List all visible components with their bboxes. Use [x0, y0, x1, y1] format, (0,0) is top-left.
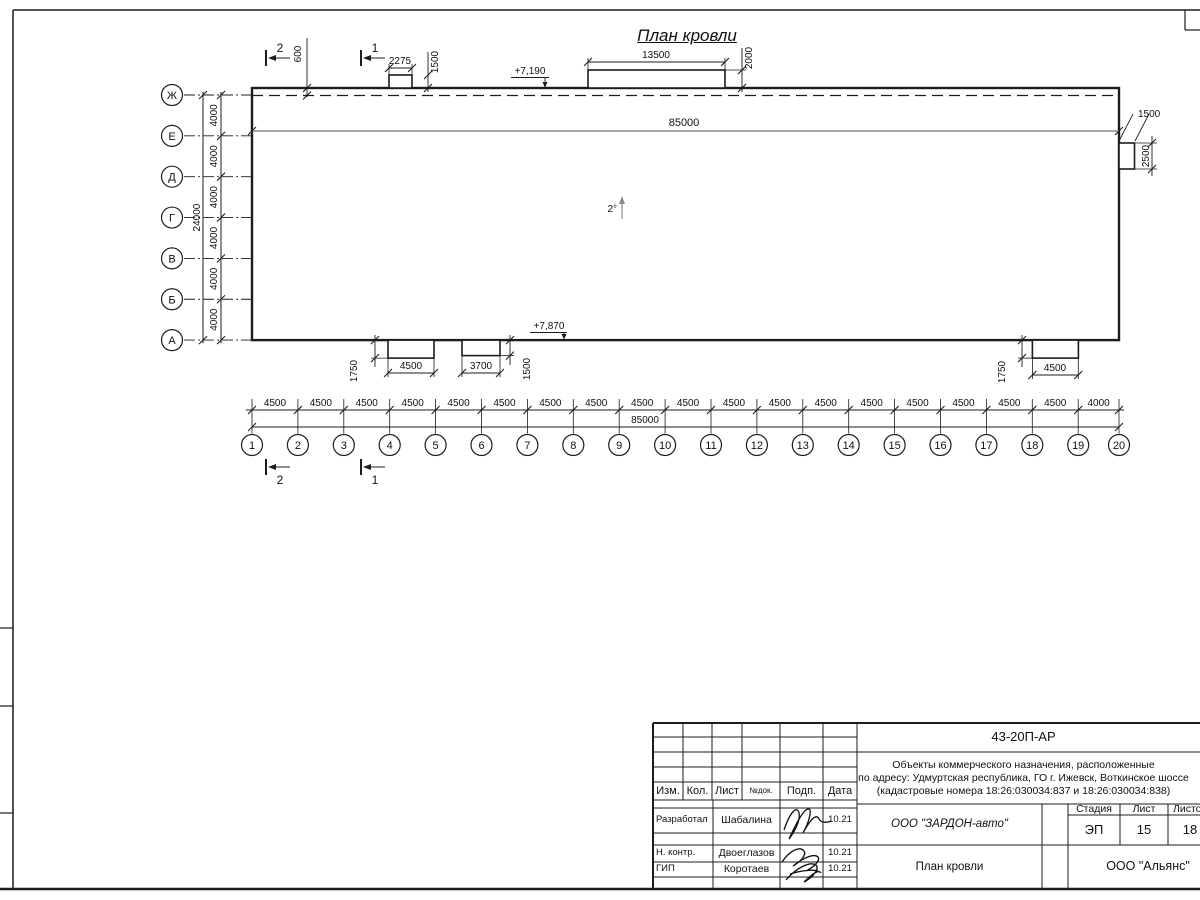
dim-label: 3700	[470, 361, 493, 372]
dim-label: 4500	[906, 398, 929, 409]
right-box	[1119, 143, 1135, 169]
axis-number: 9	[616, 440, 622, 452]
titleblock-role: Разработал	[653, 808, 716, 833]
section-label: 1	[372, 473, 379, 487]
canopy-top-large	[588, 70, 725, 88]
section-arrowhead	[268, 55, 276, 61]
titleblock-date: 10.21	[823, 845, 857, 862]
titleblock-header-col: Дата	[823, 782, 857, 800]
titleblock-header-col: Подп.	[780, 782, 823, 800]
axis-letter: Д	[168, 172, 176, 184]
section-arrowhead	[268, 464, 276, 470]
section-label: 2	[277, 473, 284, 487]
titleblock-drawing-name: План кровли	[857, 845, 1042, 889]
titleblock-date: 10.21	[823, 862, 857, 877]
titleblock-organization: ООО "ЗАРДОН-авто"	[857, 804, 1042, 845]
titleblock-date: 10.21	[823, 808, 857, 833]
axis-letter: Б	[168, 294, 175, 306]
canopy-bottom-3	[1032, 340, 1078, 358]
axis-number: 8	[570, 440, 576, 452]
axis-number: 3	[341, 440, 347, 452]
axis-number: 19	[1072, 440, 1084, 452]
titleblock-name: Двоеглазов	[713, 845, 780, 862]
titleblock-stage-value: ЭП	[1068, 815, 1120, 845]
ridge-length-label: 85000	[669, 117, 700, 129]
dim-label: 4500	[447, 398, 470, 409]
titleblock-name: Шабалина	[713, 808, 780, 833]
axis-letter: В	[168, 253, 175, 265]
titleblock-header-col: Кол.	[683, 782, 712, 800]
dim-label: 4500	[952, 398, 975, 409]
dim-label: 85000	[631, 415, 659, 426]
axis-number: 10	[659, 440, 671, 452]
axis-number: 5	[433, 440, 439, 452]
titleblock-role: Н. контр.	[653, 845, 716, 862]
dim-label: 4500	[861, 398, 884, 409]
dim-label: 1500	[522, 357, 533, 380]
dim-label: 2000	[744, 46, 755, 69]
axis-number: 6	[478, 440, 484, 452]
titleblock-header-col: №док.	[742, 782, 780, 800]
elevation-mark: +7,190	[515, 66, 546, 77]
dim-label: 4500	[769, 398, 792, 409]
canopy-top-small	[389, 75, 412, 88]
dim-label: 1500	[1138, 109, 1161, 120]
dim-label: 4500	[585, 398, 608, 409]
axis-number: 4	[387, 440, 393, 452]
axis-number: 20	[1113, 440, 1125, 452]
titleblock-company: ООО "Альянс"	[1068, 845, 1200, 889]
project-line-3: (кадастровые номера 18:26:030034:837 и 1…	[877, 785, 1171, 798]
axis-letter: Ж	[167, 90, 177, 102]
axis-number: 16	[934, 440, 946, 452]
dim-label: 600	[293, 45, 304, 62]
titleblock-name: Коротаев	[713, 862, 780, 877]
dim-label: 4000	[209, 186, 220, 209]
titleblock-stage-value: 15	[1120, 815, 1168, 845]
axis-number: 2	[295, 440, 301, 452]
axis-letter: Г	[169, 213, 175, 225]
axis-number: 13	[797, 440, 809, 452]
titleblock-stage-header: Лист	[1120, 804, 1168, 815]
dim-label: 4000	[209, 145, 220, 168]
dim-label: 2500	[1141, 144, 1152, 167]
section-arrowhead	[363, 464, 371, 470]
dim-label: 24000	[192, 203, 203, 231]
axis-number: 1	[249, 440, 255, 452]
titleblock-stage-value: 18	[1168, 815, 1200, 845]
elevation-mark: +7,870	[534, 321, 565, 332]
titleblock-document-code: 43-20П-АР	[857, 723, 1190, 752]
section-label: 2	[277, 41, 284, 55]
dim-label: 4500	[1044, 363, 1067, 374]
axis-number: 12	[751, 440, 763, 452]
dim-label: 1750	[349, 359, 360, 382]
project-line-1: Объекты коммерческого назначения, распол…	[892, 759, 1154, 772]
canopy-bottom-1	[388, 340, 434, 358]
axis-letter: А	[168, 335, 176, 347]
dim-label: 4000	[1087, 398, 1110, 409]
dim-label: 4500	[723, 398, 746, 409]
dim-label: 4500	[264, 398, 287, 409]
axis-number: 7	[524, 440, 530, 452]
titleblock-header-col: Лист	[712, 782, 742, 800]
titleblock-role: ГИП	[653, 862, 716, 877]
axis-number: 11	[705, 440, 716, 452]
slope-label: 2°	[607, 204, 617, 215]
axis-number: 14	[843, 440, 855, 452]
dim-label: 4500	[998, 398, 1021, 409]
dim-label: 2275	[389, 56, 412, 67]
axis-number: 17	[980, 440, 992, 452]
dim-label: 13500	[642, 50, 670, 61]
axis-number: 18	[1026, 440, 1038, 452]
dim-label: 1750	[997, 360, 1008, 383]
titleblock-stage-header: Стадия	[1068, 804, 1120, 815]
dim-label: 4000	[209, 226, 220, 249]
dim-label: 4500	[310, 398, 333, 409]
dim-label: 4000	[209, 267, 220, 290]
titleblock-project-description: Объекты коммерческого назначения, распол…	[857, 752, 1190, 804]
titleblock-stage-header: Листов	[1168, 804, 1200, 815]
dim-label: 4500	[402, 398, 425, 409]
dim-label: 4500	[815, 398, 838, 409]
dim-label: 4500	[677, 398, 700, 409]
dim-label: 4500	[631, 398, 654, 409]
drawing-title: План кровли	[607, 26, 767, 46]
dim-label: 4000	[209, 308, 220, 331]
dim-label: 4500	[1044, 398, 1067, 409]
dim-label: 1500	[430, 50, 441, 73]
dim-label: 4500	[493, 398, 516, 409]
titleblock-header-col: Изм.	[653, 782, 683, 800]
drawing-sheet: 850002°ЖЕДГВБА40004000400040004000400024…	[0, 0, 1200, 900]
dim-label: 4500	[400, 361, 423, 372]
dim-label: 4000	[209, 104, 220, 127]
project-line-2: по адресу: Удмуртская республика, ГО г. …	[858, 772, 1189, 785]
canopy-bottom-2	[462, 340, 500, 356]
section-label: 1	[372, 41, 379, 55]
axis-letter: Е	[168, 131, 175, 143]
dim-label: 4500	[539, 398, 562, 409]
dim-extension	[1119, 114, 1133, 141]
dim-label: 4500	[356, 398, 379, 409]
section-arrowhead	[363, 55, 371, 61]
axis-number: 15	[888, 440, 900, 452]
